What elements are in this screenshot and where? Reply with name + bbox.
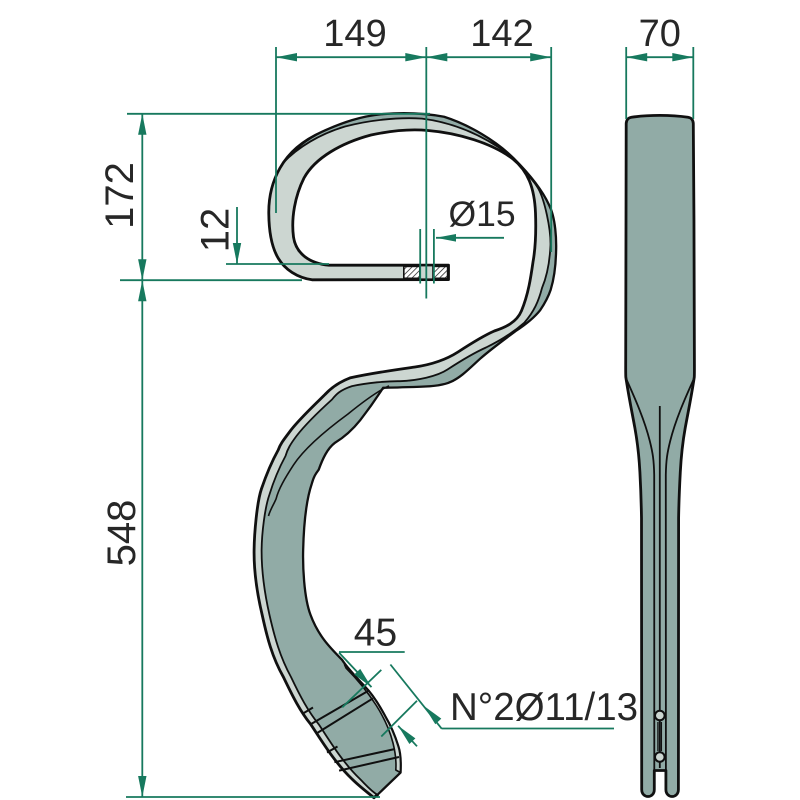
svg-text:Ø15: Ø15	[449, 194, 516, 234]
svg-text:70: 70	[639, 13, 681, 55]
svg-text:N°2Ø11/13: N°2Ø11/13	[450, 686, 638, 729]
svg-text:12: 12	[194, 208, 238, 253]
svg-text:149: 149	[323, 13, 386, 55]
svg-text:172: 172	[98, 162, 142, 229]
svg-text:45: 45	[354, 612, 397, 655]
svg-text:548: 548	[100, 500, 144, 567]
svg-text:142: 142	[470, 13, 533, 55]
